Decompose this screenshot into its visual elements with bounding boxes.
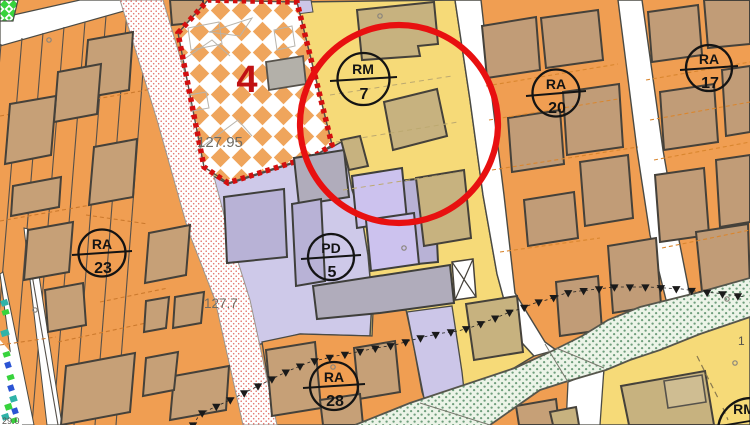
svg-text:RA: RA <box>92 236 112 252</box>
svg-text:127.7: 127.7 <box>204 296 238 311</box>
svg-text:7: 7 <box>360 86 369 103</box>
svg-text:PD: PD <box>321 240 340 256</box>
svg-text:20: 20 <box>548 100 566 117</box>
svg-text:4: 4 <box>236 59 257 101</box>
svg-text:RM: RM <box>352 61 374 77</box>
svg-text:1: 1 <box>738 334 745 348</box>
svg-text:RA: RA <box>546 76 566 92</box>
svg-text:28: 28 <box>326 393 344 410</box>
svg-text:RM: RM <box>733 401 750 417</box>
svg-text:17: 17 <box>701 75 719 92</box>
svg-text:5: 5 <box>328 264 337 281</box>
svg-text:127.95: 127.95 <box>197 134 243 151</box>
svg-text:RA: RA <box>699 51 719 67</box>
svg-text:23: 23 <box>94 260 112 277</box>
svg-text:29.0: 29.0 <box>2 416 20 425</box>
svg-text:RA: RA <box>324 369 344 385</box>
